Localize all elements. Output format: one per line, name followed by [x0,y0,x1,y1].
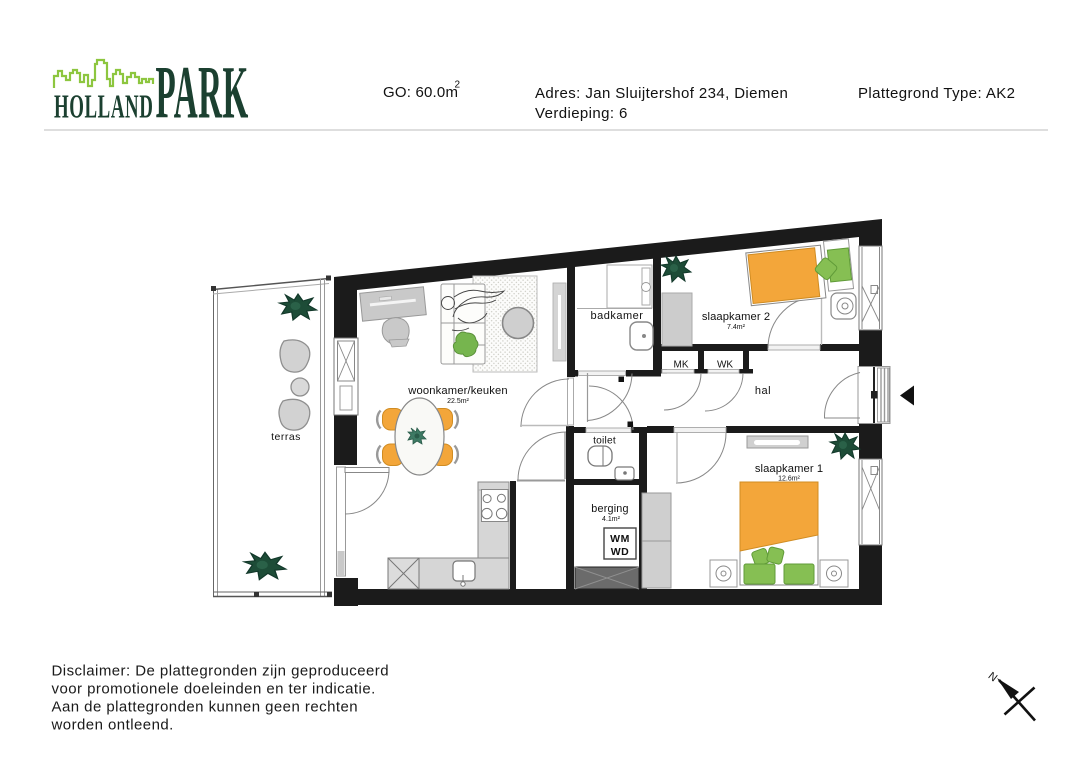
svg-text:Aan de plattegronden kunnen ge: Aan de plattegronden kunnen geen rechten [52,699,359,716]
svg-text:hal: hal [755,385,771,397]
svg-text:badkamer: badkamer [591,310,644,322]
svg-text:22.5m²: 22.5m² [447,398,469,405]
svg-text:Verdieping: 6: Verdieping: 6 [535,105,628,122]
svg-text:woonkamer/keuken: woonkamer/keuken [407,385,507,397]
svg-text:7.4m²: 7.4m² [727,324,746,331]
svg-text:12.6m²: 12.6m² [778,476,800,483]
svg-text:Plattegrond Type: AK2: Plattegrond Type: AK2 [858,85,1015,102]
svg-text:WK: WK [717,360,733,371]
svg-text:Disclaimer: De plattegronden z: Disclaimer: De plattegronden zijn geprod… [52,663,390,680]
svg-text:N: N [986,670,1000,684]
svg-text:toilet: toilet [593,436,616,447]
svg-text:WD: WD [611,546,630,558]
svg-text:berging: berging [591,503,628,515]
svg-text:terras: terras [271,431,301,443]
svg-text:Adres: Jan Sluijtershof 234, D: Adres: Jan Sluijtershof 234, Diemen [535,85,788,102]
svg-text:slaapkamer 2: slaapkamer 2 [702,311,770,323]
svg-text:WM: WM [610,533,630,545]
svg-text:2: 2 [455,80,461,91]
svg-text:worden ontleend.: worden ontleend. [51,717,174,734]
svg-text:slaapkamer 1: slaapkamer 1 [755,463,823,475]
svg-text:HOLLAND: HOLLAND [54,88,153,125]
svg-text:4.1m²: 4.1m² [602,516,621,523]
svg-text:GO: 60.0m: GO: 60.0m [383,84,458,101]
svg-text:MK: MK [674,360,689,371]
svg-text:voor promotionele doeleinden e: voor promotionele doeleinden en ter indi… [52,681,376,698]
svg-text:PARK: PARK [156,50,249,134]
